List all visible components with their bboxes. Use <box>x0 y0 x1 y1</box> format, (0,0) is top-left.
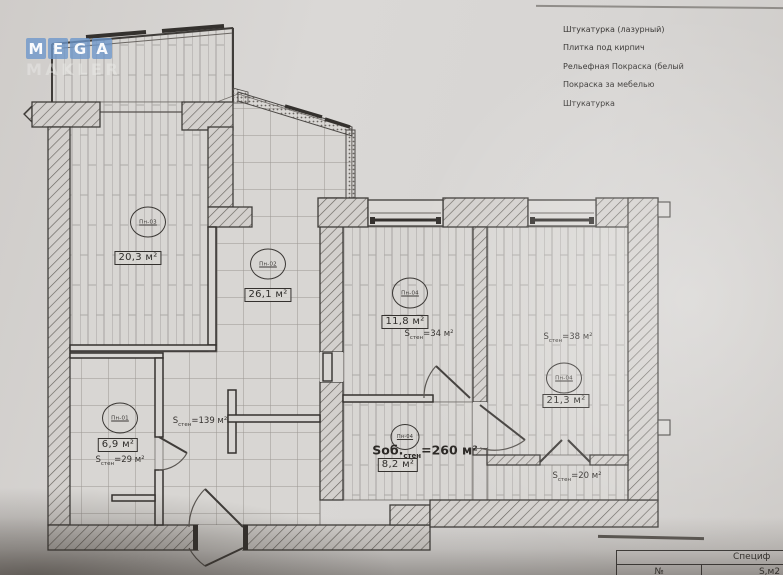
watermark-letter: A <box>92 38 112 59</box>
spec-col-no: № <box>617 565 702 575</box>
watermark-letter: M <box>26 38 46 59</box>
s-value: =38 м² <box>562 332 592 342</box>
room-tag-pn03: Пн-03 <box>130 207 166 238</box>
s-value: =34 м² <box>423 329 453 339</box>
room-tag-text: Пн-03 <box>139 219 157 225</box>
room-tag-pn04-a: Пн-04 <box>392 278 428 309</box>
spec-table: Специф № S,м2 <box>616 550 783 575</box>
s-sub: стен <box>101 461 114 467</box>
s-prefix: Sоб. <box>372 442 403 457</box>
legend-item: Штукатурка <box>563 95 684 113</box>
wall-area-note-hall: Sстен=139 м² <box>173 416 228 428</box>
legend-item: Плитка под кирпич <box>563 39 684 57</box>
room-tag-pn02: Пн-02 <box>250 249 286 280</box>
wall-area-note-br: Sстен=20 м² <box>552 471 601 483</box>
s-sub: стен <box>549 338 562 344</box>
floor-plan-photo: M E G A MAKLER Штукатурка (лазурный) Пли… <box>0 0 783 575</box>
legend-item: Рельефная Покраска (белый <box>563 58 684 76</box>
watermark-letter: E <box>48 38 68 59</box>
s-sub: стен <box>410 335 423 341</box>
wall-area-note: Sстен=38 м² <box>543 332 592 344</box>
room-tag-pn04-b: Пн-04 <box>546 363 582 394</box>
s-value: =20 м² <box>571 471 601 481</box>
s-sub: стен <box>403 452 421 460</box>
wall-area-note-total: Sоб.стен=260 м² <box>372 442 478 460</box>
wall-ticks <box>658 202 670 435</box>
wall-area-note: Sстен=34 м² <box>404 329 453 341</box>
legend-item: Покраска за мебелью <box>563 76 684 94</box>
s-value: =29 м² <box>114 455 144 465</box>
s-value: =139 м² <box>191 416 227 426</box>
s-sub: стен <box>178 422 191 428</box>
room-tag-text: Пн-04 <box>401 290 419 296</box>
watermark-letter: G <box>70 38 90 59</box>
room-tag-text: Пн-02 <box>259 261 277 267</box>
room-area-label: 20,3 м² <box>114 251 161 265</box>
room-area-label: 26,1 м² <box>244 288 291 302</box>
legend-item: Штукатурка (лазурный) <box>563 21 684 39</box>
room-tag-text: Пн-01 <box>111 415 129 421</box>
watermark-mega: M E G A <box>26 38 121 59</box>
s-value: =260 м² <box>421 442 478 457</box>
s-sub: стен <box>558 477 571 483</box>
room-tag-pn01: Пн-01 <box>102 403 138 434</box>
finish-legend: Штукатурка (лазурный) Плитка под кирпич … <box>563 21 684 113</box>
watermark-logo: M E G A MAKLER <box>26 38 121 79</box>
room-tag-text: Пн-04 <box>397 434 413 440</box>
room-area-label: 8,2 м² <box>378 458 418 472</box>
watermark-makler: MAKLER <box>26 60 121 79</box>
room-tag-text: Пн-04 <box>555 375 573 381</box>
room-area-label: 6,9 м² <box>98 438 138 452</box>
wall-area-note: Sстен=29 м² <box>95 455 144 467</box>
room-area-label: 11,8 м² <box>381 315 428 329</box>
spec-col-area: S,м2 <box>702 565 783 575</box>
spec-table-header-row: № S,м2 <box>617 565 783 575</box>
spec-table-title: Специф <box>617 551 783 565</box>
room-area-label: 21,3 м² <box>542 394 589 408</box>
